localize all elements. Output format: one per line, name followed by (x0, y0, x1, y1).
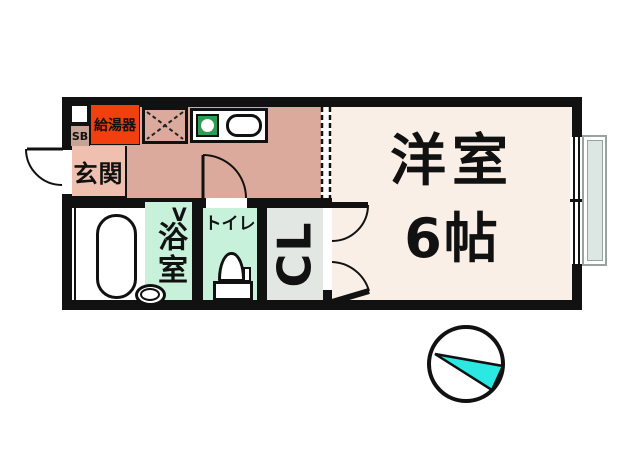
toilet-door-arc (203, 155, 246, 198)
floorplan-canvas: SB 給湯器 玄関 V 浴室 トイレ (0, 0, 640, 456)
doors-overlay (0, 0, 640, 456)
closet-door-bottom-panel (332, 291, 369, 302)
entrance-door-arc (26, 149, 62, 185)
compass (416, 314, 520, 418)
closet-door-bottom-arc (332, 262, 369, 291)
closet-door-top-arc (332, 205, 368, 241)
